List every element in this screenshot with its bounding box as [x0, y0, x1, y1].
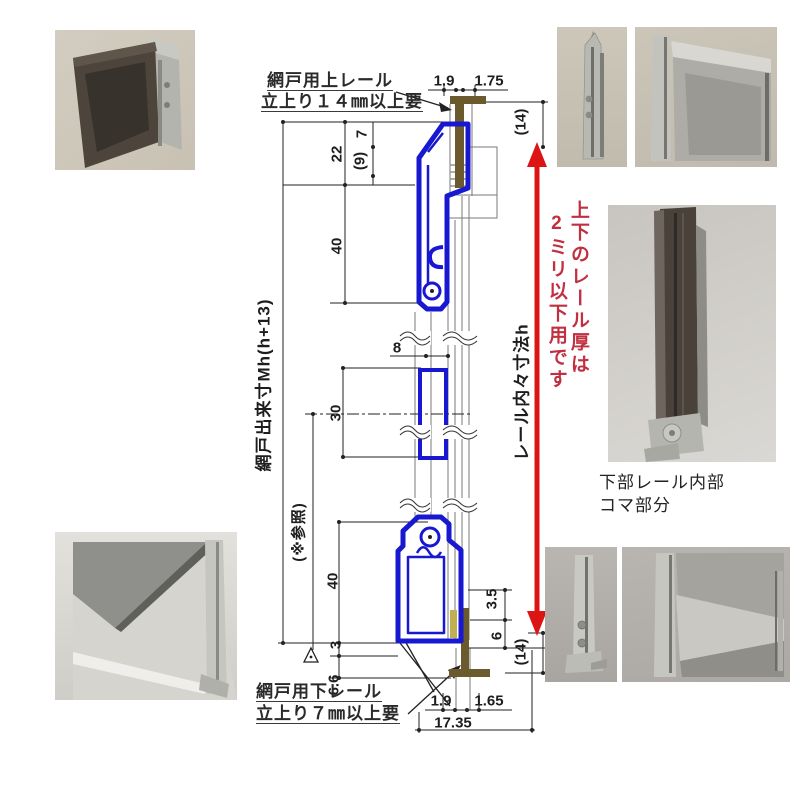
photo-bottom-rail-inner-koma — [608, 205, 776, 462]
photo-bottom-rail-profile-edge — [545, 547, 617, 682]
top-rail-label-line2: 立上り１４㎜以上要 — [261, 93, 423, 112]
dim-30: 30 — [329, 405, 344, 422]
red-note-column-2: 2ミリ以下用です — [545, 213, 566, 391]
dim-bottom-left-width: 1.9 — [431, 694, 452, 709]
dim-9: (9) — [353, 152, 368, 170]
bottom-rail-label-line1: 網戸用下レール — [256, 683, 382, 702]
top-rail-label-line1: 網戸用上レール — [267, 72, 393, 91]
dim-bottom-total-width: 17.35 — [434, 716, 472, 731]
dim-22: 22 — [330, 146, 345, 163]
photo-caption-line1: 下部レール内部 — [599, 472, 725, 495]
dim-top-left-width: 1.9 — [434, 74, 455, 89]
dimension-lines — [278, 85, 548, 733]
photo-bottom-corner-silver-frame — [622, 547, 790, 682]
dim-40-top: 40 — [330, 238, 345, 255]
photo-bottom-corner-mesh-frame — [55, 532, 237, 700]
dim-40-bottom: 40 — [326, 573, 341, 590]
dim-7: 7 — [355, 130, 370, 138]
red-note-column-1: 上下のレール厚は — [567, 200, 588, 376]
break-marks — [400, 331, 477, 512]
photo-caption-line2: コマ部分 — [599, 495, 671, 518]
photo-top-corner-silver-frame — [635, 27, 777, 167]
photo-top-rail-profile-edge — [557, 27, 627, 167]
dim-bottom-right-width: 1.65 — [474, 694, 503, 709]
dim-bottom-clearance: (14) — [514, 639, 529, 666]
rail-inner-height-label: レール内々寸法h — [514, 323, 531, 460]
dim-top-right-width: 1.75 — [474, 74, 503, 89]
dim-6: 6 — [490, 632, 505, 640]
dim-top-clearance: (14) — [514, 109, 529, 136]
reference-label: (※参照) — [292, 502, 307, 562]
reference-triangle-marker — [304, 648, 318, 662]
photo-top-corner-bronze-frame — [55, 30, 195, 170]
dim-3: 3 — [329, 641, 344, 649]
screen-height-label: 網戸出来寸Mh(h+13) — [256, 298, 273, 471]
bottom-rail-label-line2: 立上り７㎜以上要 — [256, 705, 400, 724]
dim-3-5: 3.5 — [485, 589, 500, 610]
screen-door-rail-diagram-page: 網戸用上レール 立上り１４㎜以上要 1.9 1.75 (14) 7 (9) 22… — [0, 0, 800, 800]
dim-8: 8 — [393, 341, 401, 356]
